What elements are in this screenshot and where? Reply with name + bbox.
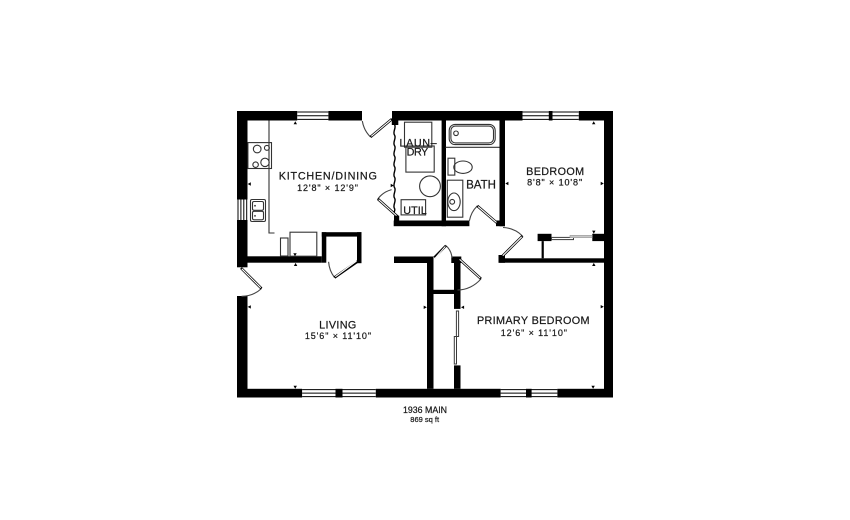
svg-text:LIVING: LIVING — [319, 320, 357, 332]
svg-text:12'6" × 11'10": 12'6" × 11'10" — [501, 328, 568, 338]
svg-text:UTIL: UTIL — [403, 205, 426, 217]
svg-text:12'8" × 12'9": 12'8" × 12'9" — [297, 183, 359, 193]
svg-text:869 sq ft: 869 sq ft — [410, 415, 440, 424]
svg-text:KITCHEN/DINING: KITCHEN/DINING — [279, 171, 378, 183]
svg-text:15'6" × 11'10": 15'6" × 11'10" — [305, 331, 372, 341]
svg-text:PRIMARY BEDROOM: PRIMARY BEDROOM — [477, 315, 590, 327]
svg-text:DRY: DRY — [407, 147, 428, 159]
svg-text:1936 MAIN: 1936 MAIN — [403, 405, 447, 415]
svg-text:BEDROOM: BEDROOM — [526, 166, 584, 178]
svg-text:BATH: BATH — [466, 180, 496, 192]
svg-text:8'8" × 10'8": 8'8" × 10'8" — [527, 178, 583, 188]
